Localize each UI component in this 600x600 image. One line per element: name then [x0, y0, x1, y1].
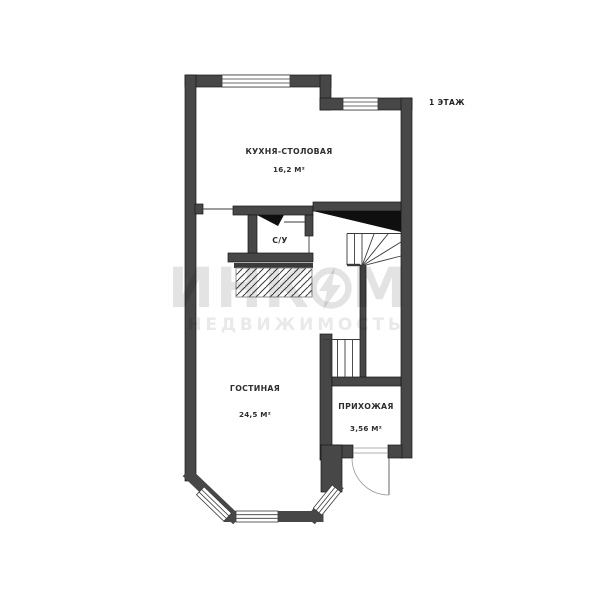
wall-hallway-bottom-right	[388, 445, 402, 458]
living-room-label: ГОСТИНАЯ	[230, 384, 280, 393]
living-room-area: 24,5 М²	[239, 410, 271, 419]
floor-label: 1 ЭТАЖ	[429, 98, 465, 107]
wall-bathroom-top	[233, 206, 313, 215]
kitchen-label: КУХНЯ-СТОЛОВАЯ	[245, 147, 332, 156]
watermark: ИНК М НЕДВИЖИМОСТЬ	[168, 256, 407, 335]
bathroom-door-triangle	[257, 215, 284, 226]
floorplan-svg: ИНК М НЕДВИЖИМОСТЬ КУХНЯ-СТОЛОВАЯ 16,2 М…	[0, 0, 600, 600]
entrance-door	[352, 448, 389, 495]
understair-shading-wedge	[313, 211, 401, 232]
hallway-label: ПРИХОЖАЯ	[338, 402, 393, 411]
bay-window-center	[236, 511, 278, 522]
wall-hallway-top	[332, 377, 401, 386]
door-swing-arc	[352, 458, 389, 495]
watermark-subtitle: НЕДВИЖИМОСТЬ	[187, 315, 404, 335]
hallway-area: 3,56 М²	[350, 424, 382, 433]
window-kitchen-right	[343, 98, 378, 110]
wall-tick	[195, 204, 203, 214]
window-kitchen-left	[222, 75, 290, 87]
bathroom-label: С/У	[272, 236, 287, 245]
watermark-brand-right: М	[352, 256, 407, 320]
wall-bathroom-right	[305, 215, 313, 236]
floorplan-image: ИНК М НЕДВИЖИМОСТЬ КУХНЯ-СТОЛОВАЯ 16,2 М…	[0, 0, 600, 600]
kitchen-area: 16,2 М²	[273, 165, 305, 174]
watermark-brand-left: ИНК	[168, 256, 311, 320]
wall-kitchen-south-right	[313, 202, 401, 211]
wall-bathroom-left	[248, 215, 257, 255]
